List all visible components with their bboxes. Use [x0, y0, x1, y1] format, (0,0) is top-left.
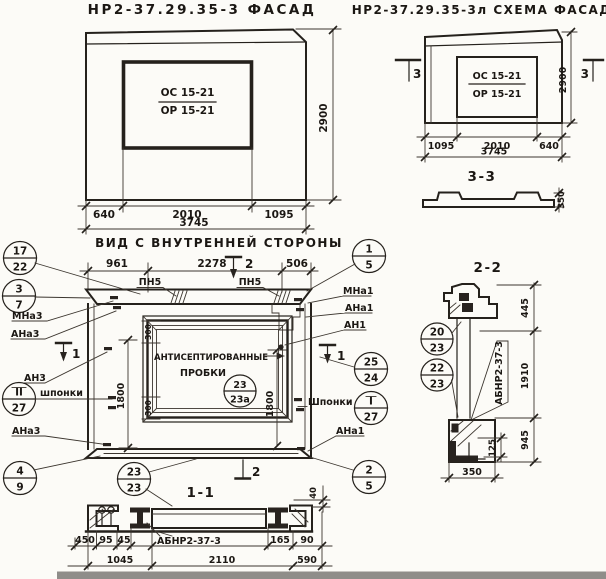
callout-2-5-top: 2 [365, 465, 372, 477]
blueprint-canvas: НР2-37.29.35-3 ФАСАД ОС 15-21 ОР 15-21 2… [0, 0, 606, 579]
label-ana1-bottom: АНа1 [308, 426, 364, 451]
marker-1-right-label: 1 [337, 349, 345, 363]
callout-II-27: II 27 шпонки [3, 383, 113, 416]
height-dim-left-text: 1800 [116, 382, 127, 409]
callout-25-24: 25 24 [320, 353, 388, 386]
inner-dim-left: 961 [106, 258, 128, 270]
facade-window-mark-top: ОС 15-21 [161, 87, 215, 99]
an3-text: АН3 [24, 373, 46, 384]
callout-20-23: 20 23 [421, 322, 461, 355]
dim-2110: 2110 [209, 555, 236, 566]
callout-I-27-bottom: 27 [364, 412, 379, 424]
ana3-top-text: АНа3 [11, 329, 39, 340]
corner-dim-top: 300 [144, 324, 153, 340]
section-2-2-label: 2-2 [474, 260, 503, 276]
mna1-text: МНа1 [343, 286, 373, 297]
facade-dimensions: 2900 640 2010 1095 3745 [78, 26, 341, 234]
inner-view-drawing: ВИД С ВНУТРЕННЕЙ СТОРОНЫ 961 2278 506 2 … [3, 235, 388, 506]
callout-23-23a-top: 23 [233, 380, 246, 391]
weld-label-pn5-right: ПН5 [237, 277, 279, 296]
part-label-1-1: АБНР2-37-3 [157, 536, 221, 547]
callout-17-22-top: 17 [13, 246, 28, 258]
scheme-dim-height: 2900 [558, 66, 569, 93]
scheme-panel: ОС 15-21 ОР 15-21 [425, 30, 562, 123]
section-2-2: 2-2 АБНР2-37-3 125 445 1910 945 [421, 260, 541, 482]
callout-4-9-top: 4 [16, 466, 23, 478]
shponki-left-text: шпонки [40, 388, 83, 399]
scheme-title: НР2-37.29.35-3л СХЕМА ФАСАДА [352, 3, 606, 17]
dim-45: 45 [117, 535, 130, 546]
scheme-section-marker-left: 3 [396, 60, 421, 81]
callout-22-23: 22 23 [421, 359, 458, 417]
pn5-left-text: ПН5 [139, 277, 162, 288]
callout-20-23-top: 20 [430, 327, 445, 339]
height-dim-left: 1800 [116, 336, 137, 452]
an1-text: АН1 [344, 320, 366, 331]
scheme-section-marker-right: 3 [581, 60, 603, 81]
ana1-top-text: АНа1 [345, 303, 373, 314]
callout-23-23-top: 23 [127, 467, 142, 479]
ana3-bottom-text: АНа3 [12, 426, 40, 437]
scheme-dim-left: 1095 [428, 141, 454, 152]
callout-22-23-top: 22 [430, 363, 445, 375]
section-3-3-label: 3-3 [468, 169, 497, 185]
scheme-window [457, 57, 537, 117]
callout-II-27-bottom: 27 [12, 403, 27, 415]
dim-450: 450 [75, 535, 95, 546]
dim-90: 90 [300, 535, 314, 546]
section-marker-1-left: 1 [56, 343, 80, 362]
scheme-marker-left-label: 3 [413, 67, 421, 81]
marker-2-top-label: 2 [245, 257, 253, 271]
dim-40: 40 [309, 487, 319, 499]
marker-1-left-label: 1 [72, 347, 80, 361]
dim-590: 590 [297, 555, 317, 566]
callout-22-23-bottom: 23 [430, 379, 445, 391]
dim-1045: 1045 [107, 555, 133, 566]
weld-label-pn5-left: ПН5 [137, 277, 176, 296]
section-1-1-label: 1-1 [187, 485, 216, 501]
callout-25-24-bottom: 24 [364, 373, 379, 385]
dim-945: 945 [520, 430, 531, 450]
callout-23-23a: 23 23а [224, 375, 256, 407]
part-label-2-2: АБНР2-37-3 [494, 341, 505, 405]
section-1-1-dimensions: 450 95 45 165 90 1045 2110 590 АБНР2-37-… [68, 512, 332, 570]
facade-title: НР2-37.29.35-3 ФАСАД [88, 2, 317, 18]
callout-2-5: 2 5 [310, 457, 386, 494]
callout-4-9: 4 9 [4, 456, 101, 495]
scan-edge-strip [57, 572, 606, 579]
section-3-3-profile: 350 [423, 188, 567, 212]
scheme-drawing: НР2-37.29.35-3л СХЕМА ФАСАДА ОС 15-21 ОР… [352, 3, 606, 212]
scheme-marker-right-label: 3 [581, 67, 589, 81]
inner-dim-mid: 2278 [197, 258, 226, 270]
facade-drawing: НР2-37.29.35-3 ФАСАД ОС 15-21 ОР 15-21 2… [78, 2, 341, 234]
callout-23-23-bottom: 23 [127, 483, 142, 495]
profile-thickness-dim: 350 [557, 191, 567, 209]
plugs-label-line1: АНТИСЕПТИРОВАННЫЕ [154, 353, 268, 363]
scheme-window-mark-bottom: ОР 15-21 [473, 89, 522, 100]
mna3-text: МНа3 [12, 311, 42, 322]
plugs-label-line2: ПРОБКИ [180, 368, 226, 379]
callout-3-7-bottom: 7 [15, 300, 22, 312]
callout-17-22-bottom: 22 [13, 262, 28, 274]
scheme-dim-right: 640 [539, 141, 559, 152]
facade-dim-height: 2900 [318, 103, 330, 132]
callout-II-27-top: II [15, 387, 23, 399]
facade-panel: ОС 15-21 ОР 15-21 [86, 30, 306, 201]
callout-3-7-top: 3 [15, 284, 22, 296]
scheme-window-mark-top: ОС 15-21 [473, 71, 522, 82]
corner-dim-bottom: 300 [144, 400, 153, 416]
label-an3: АН3 [24, 352, 107, 384]
dim-350: 350 [462, 467, 482, 478]
marker-2-bottom-label: 2 [252, 465, 260, 479]
ana1-bottom-text: АНа1 [336, 426, 364, 437]
facade-dim-total: 3745 [179, 217, 208, 229]
section-2-2-profile: АБНР2-37-3 [444, 284, 508, 462]
callout-4-9-bottom: 9 [16, 482, 23, 494]
callout-1-5-bottom: 5 [365, 260, 372, 272]
inner-dim-right: 506 [286, 258, 308, 270]
dim-1910: 1910 [520, 362, 531, 389]
dim-125: 125 [488, 439, 498, 457]
height-dim-right-text: 1800 [265, 390, 276, 417]
dim-165: 165 [270, 535, 290, 546]
callout-I-27-top: I [369, 396, 373, 408]
shponki-right-text: Шпонки [308, 397, 353, 408]
scheme-dim-total: 3745 [481, 147, 507, 158]
inner-view-title: ВИД С ВНУТРЕННЕЙ СТОРОНЫ [95, 235, 343, 250]
facade-dim-left: 640 [93, 209, 115, 221]
facade-dim-right: 1095 [264, 209, 293, 221]
callout-25-24-top: 25 [364, 357, 379, 369]
facade-window-mark-bottom: ОР 15-21 [161, 105, 215, 117]
pn5-right-text: ПН5 [239, 277, 262, 288]
label-mna1: МНа1 [308, 286, 373, 303]
callout-2-5-bottom: 5 [365, 481, 372, 493]
callout-3-7: 3 7 [3, 280, 91, 313]
dim-95: 95 [99, 535, 112, 546]
callout-1-5-top: 1 [365, 244, 372, 256]
callout-20-23-bottom: 23 [430, 343, 445, 355]
callout-23-23a-bottom: 23а [230, 395, 250, 406]
section-marker-2-bottom: 2 [236, 460, 261, 479]
callout-23-23: 23 23 [118, 459, 197, 506]
section-1-1: 1-1 2 40 450 95 45 [68, 460, 332, 570]
label-ana1-top: АНа1 [306, 303, 373, 317]
dim-445: 445 [520, 298, 531, 318]
section-marker-2-top: 2 [226, 257, 253, 279]
